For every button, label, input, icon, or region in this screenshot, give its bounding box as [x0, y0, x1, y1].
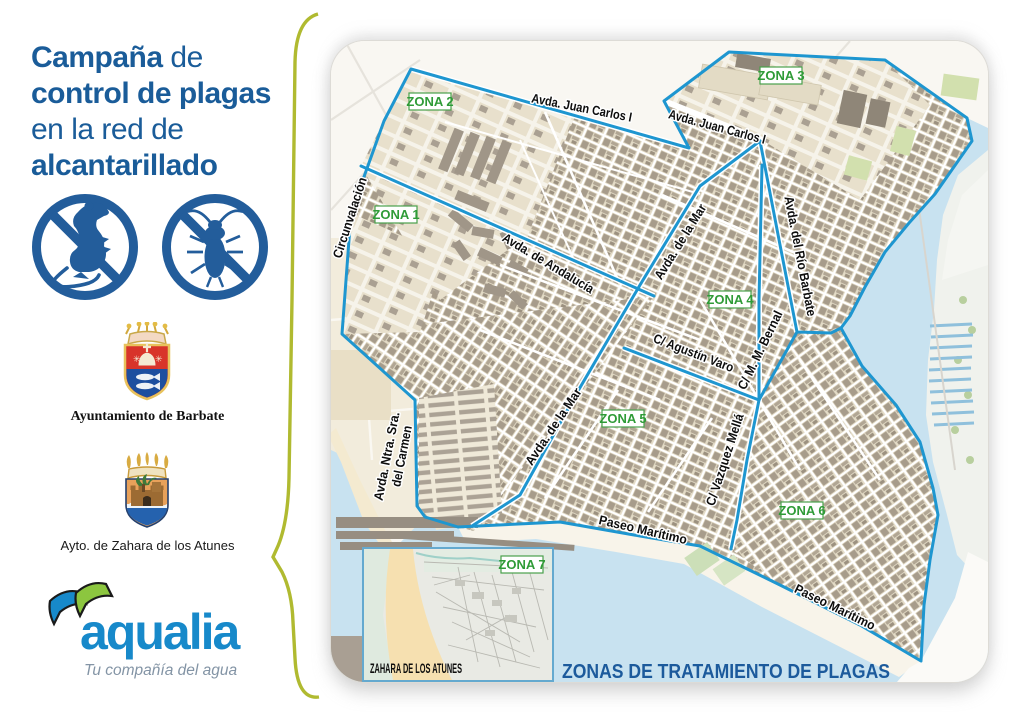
svg-text:✳: ✳: [133, 354, 141, 364]
svg-text:ZONA 6: ZONA 6: [778, 503, 825, 518]
svg-text:✳: ✳: [155, 354, 163, 364]
svg-text:ZONA 2: ZONA 2: [406, 94, 453, 109]
svg-text:ZAHARA DE LOS ATUNES: ZAHARA DE LOS ATUNES: [370, 661, 462, 676]
svg-text:ZONA 7: ZONA 7: [498, 557, 545, 572]
svg-text:ZONA 4: ZONA 4: [706, 292, 754, 307]
svg-text:ZONA 5: ZONA 5: [599, 411, 646, 426]
svg-text:ZONA 1: ZONA 1: [372, 207, 419, 222]
svg-text:ZONA 3: ZONA 3: [757, 68, 804, 83]
svg-text:ZONAS DE TRATAMIENTO DE PLAGAS: ZONAS DE TRATAMIENTO DE PLAGAS: [562, 661, 890, 682]
